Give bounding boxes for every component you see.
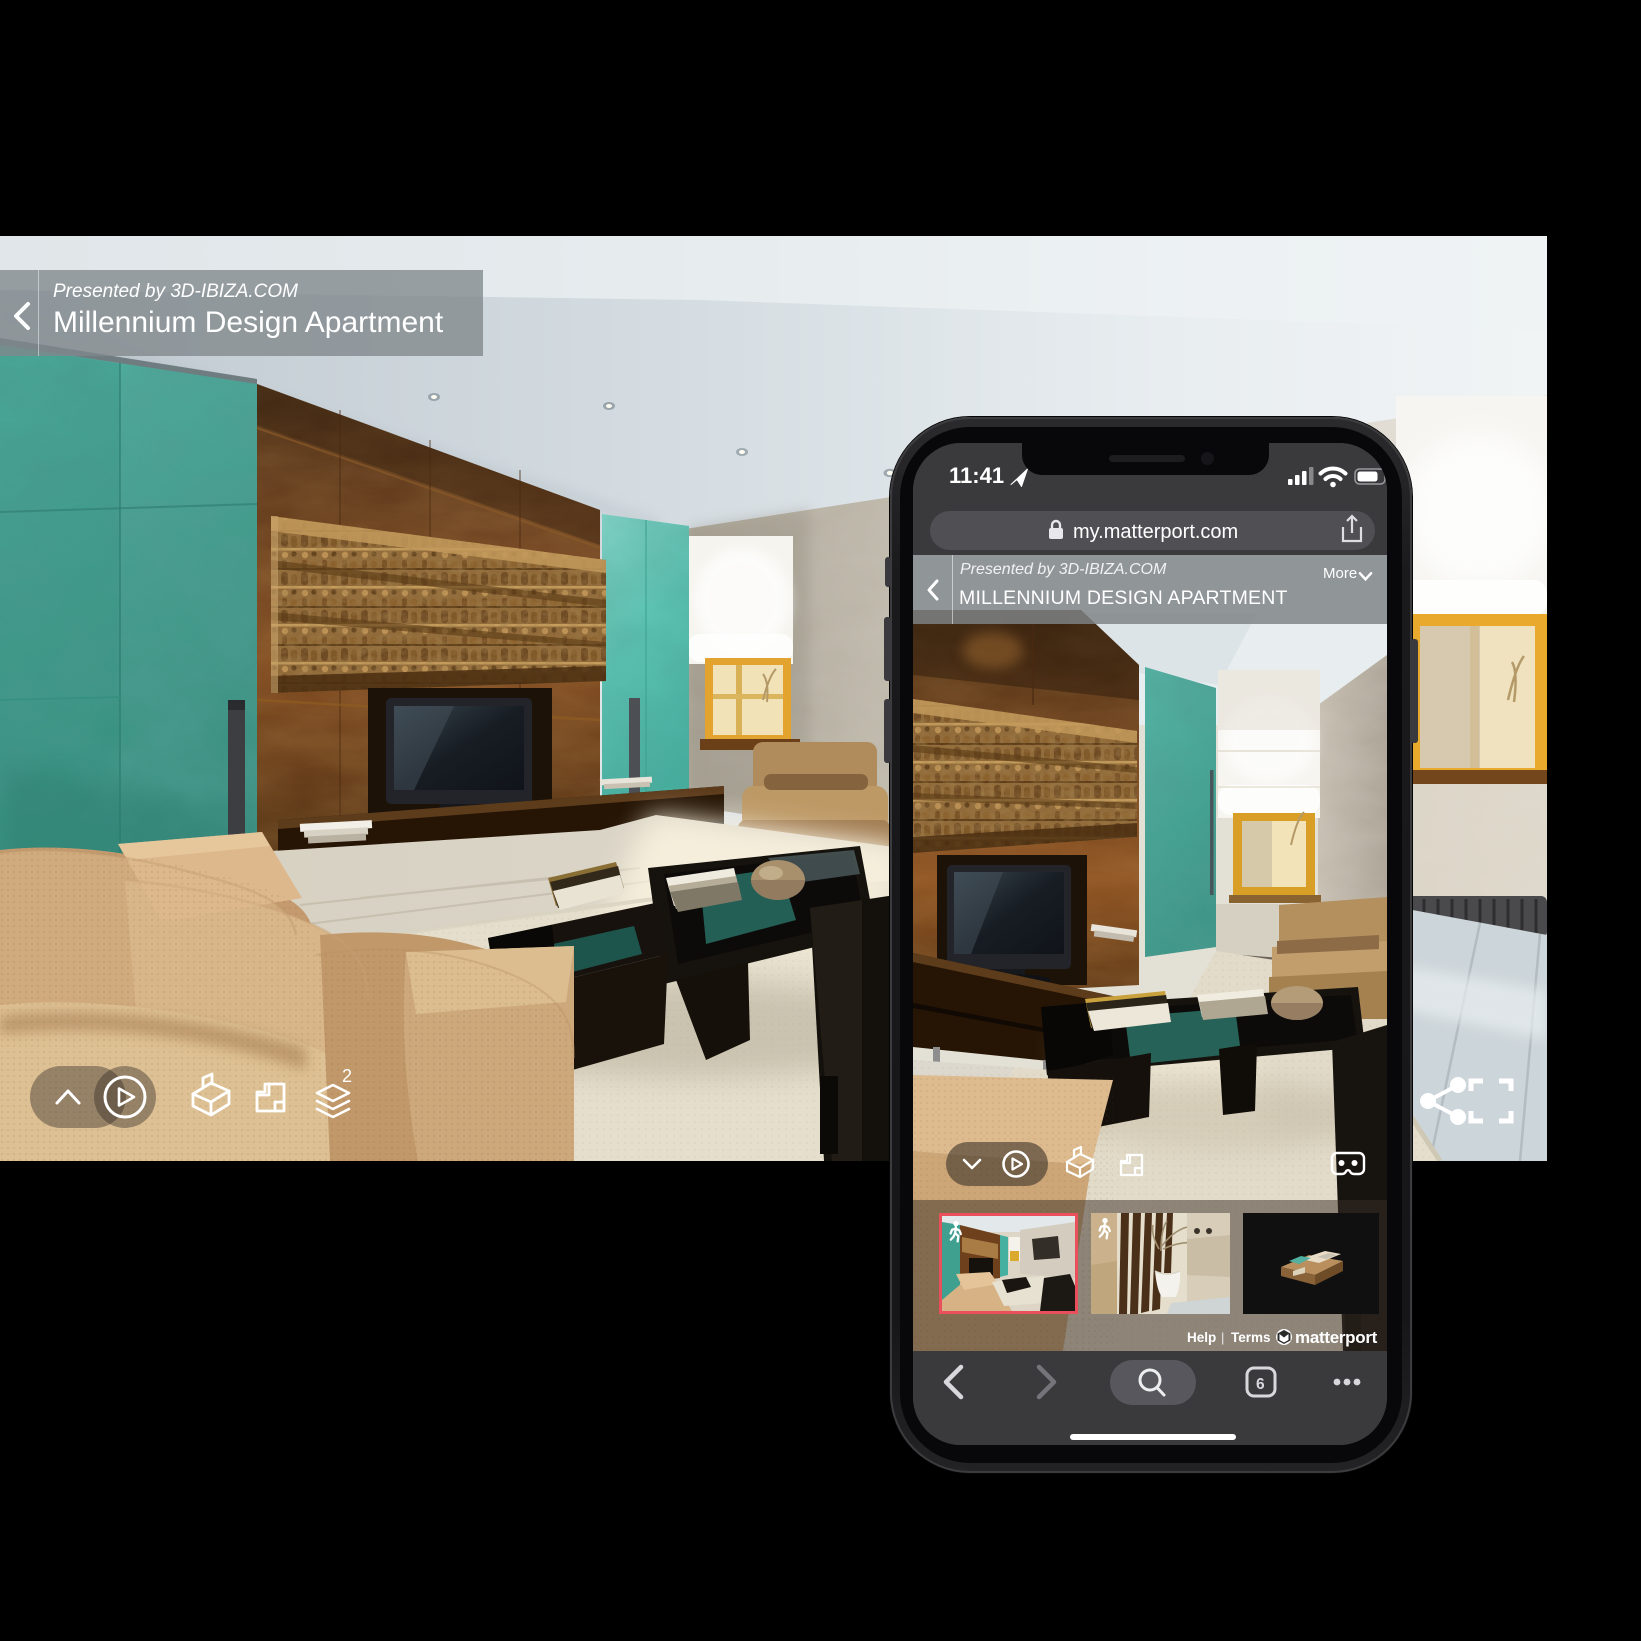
svg-text:my.matterport.com: my.matterport.com <box>1073 521 1238 543</box>
svg-text:11:41: 11:41 <box>949 463 1004 488</box>
svg-text:matterport: matterport <box>1295 1328 1378 1347</box>
svg-text:2: 2 <box>342 1066 352 1086</box>
svg-text:Help: Help <box>1187 1330 1216 1345</box>
svg-text:6: 6 <box>1256 1376 1265 1393</box>
svg-text:|: | <box>1221 1330 1224 1345</box>
svg-text:Terms: Terms <box>1231 1330 1271 1345</box>
